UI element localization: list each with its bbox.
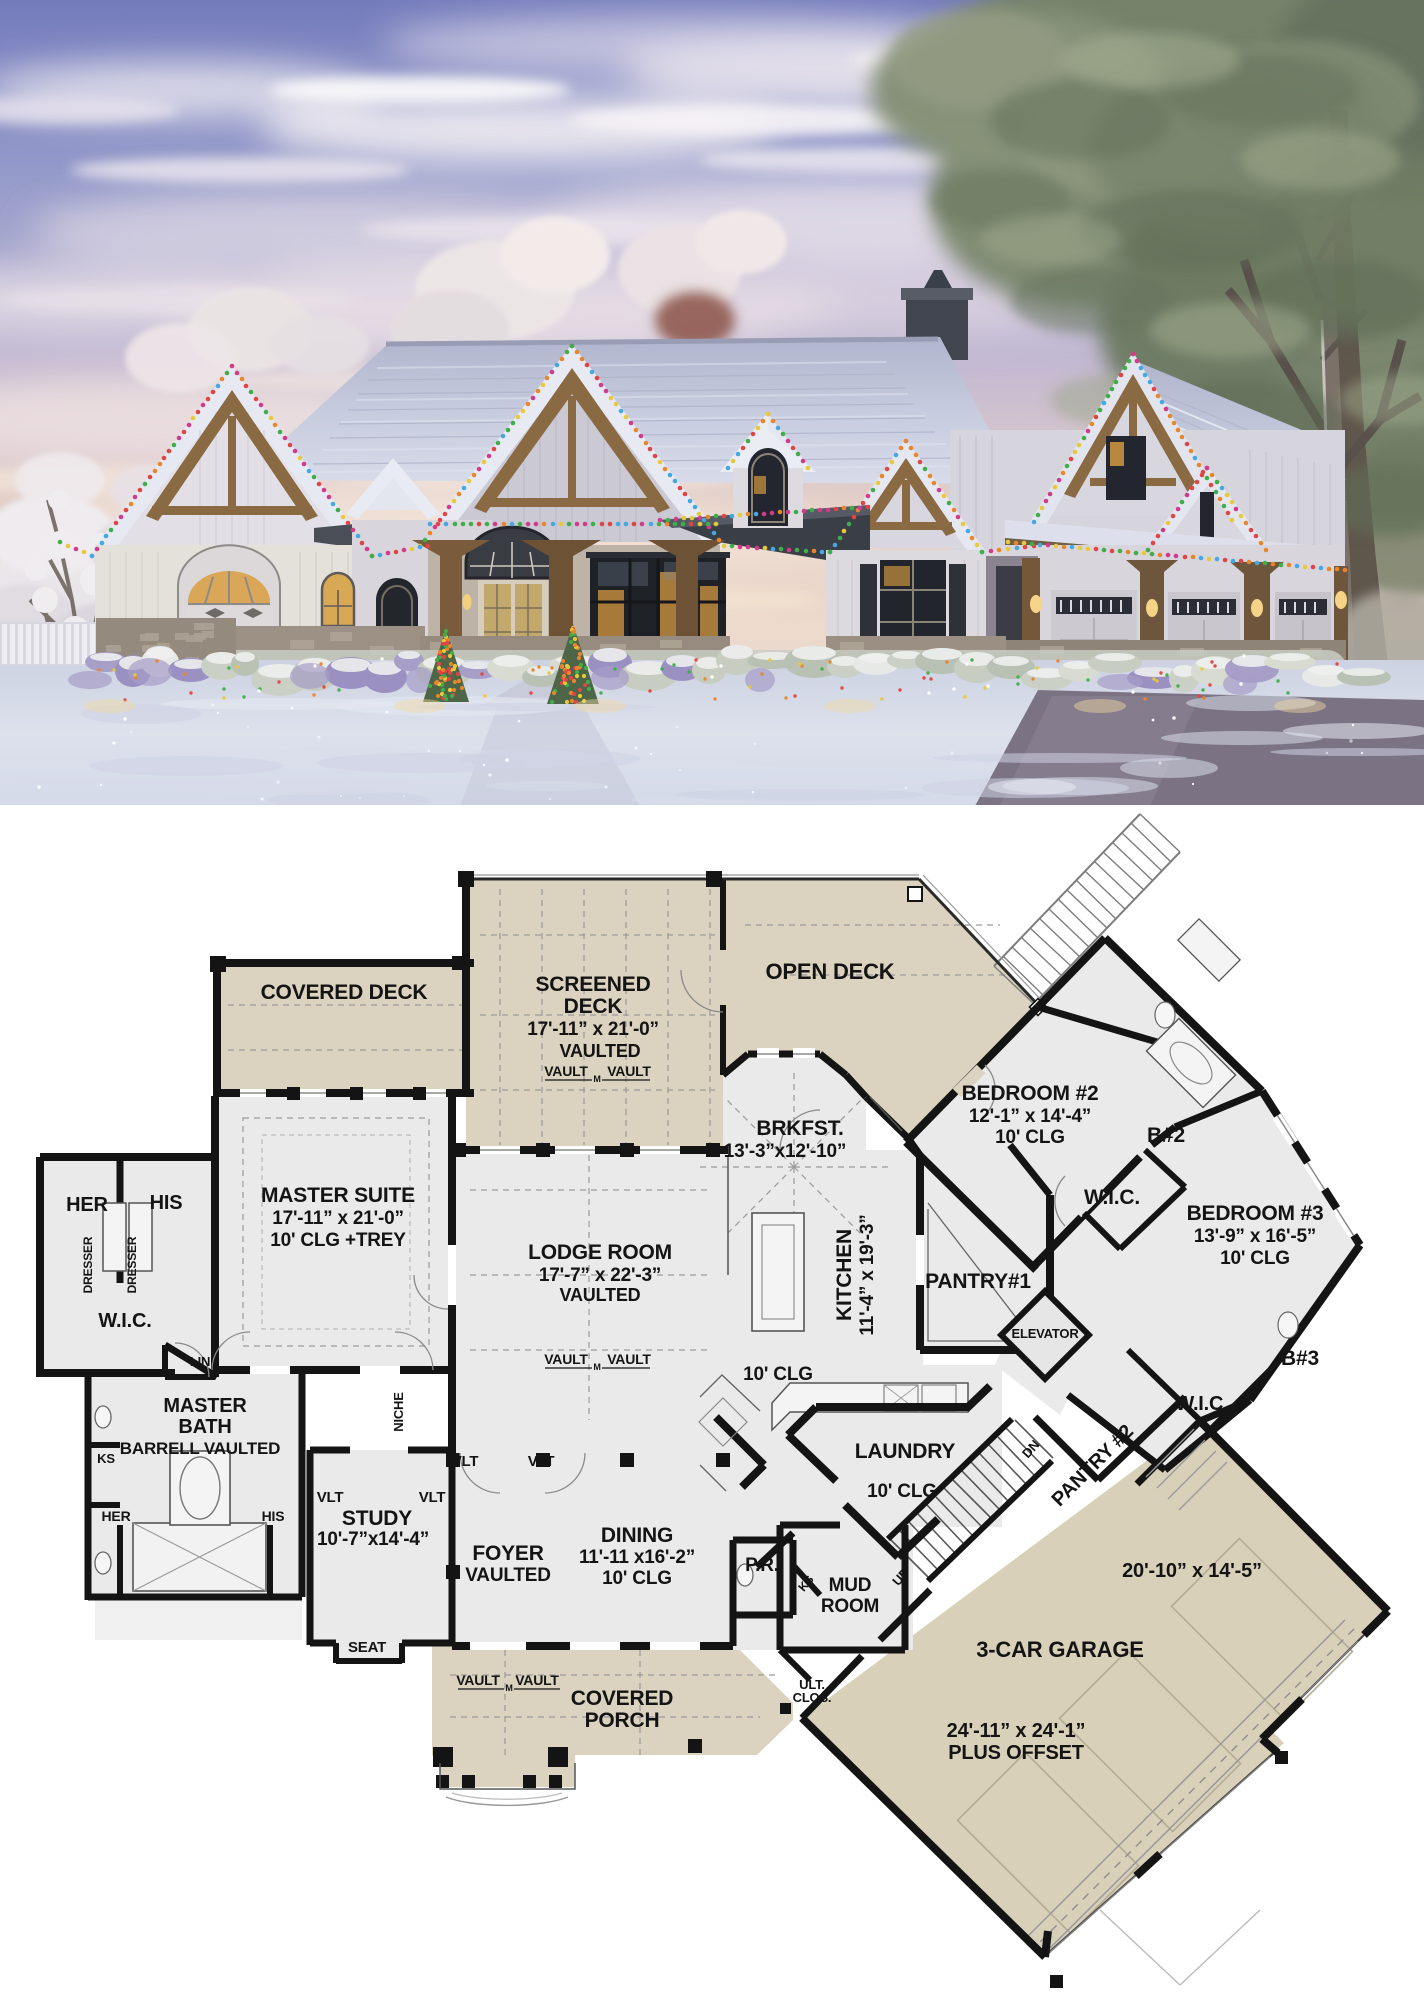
- svg-text:VAULT: VAULT: [515, 1672, 559, 1688]
- svg-text:BARRELL VAULTED: BARRELL VAULTED: [120, 1439, 280, 1458]
- svg-text:10' CLG: 10' CLG: [995, 1127, 1065, 1148]
- svg-text:CLOS.: CLOS.: [793, 1690, 832, 1705]
- svg-text:M: M: [593, 1362, 600, 1372]
- svg-text:NICHE: NICHE: [391, 1392, 406, 1432]
- svg-text:PLUS OFFSET: PLUS OFFSET: [948, 1742, 1084, 1764]
- svg-text:17'-7” x 22'-3”: 17'-7” x 22'-3”: [539, 1265, 661, 1286]
- svg-text:LODGE ROOM: LODGE ROOM: [528, 1241, 672, 1264]
- svg-text:MASTER SUITE: MASTER SUITE: [261, 1184, 415, 1207]
- svg-text:VAULTED: VAULTED: [465, 1565, 551, 1586]
- svg-text:B#3: B#3: [1281, 1347, 1319, 1370]
- svg-text:17'-11” x 21'-0”: 17'-11” x 21'-0”: [527, 1019, 659, 1040]
- svg-text:KITCHEN: KITCHEN: [833, 1229, 856, 1321]
- svg-text:W.I.C.: W.I.C.: [1084, 1186, 1140, 1209]
- svg-text:20'-10” x 14'-5”: 20'-10” x 14'-5”: [1122, 1560, 1262, 1582]
- svg-text:BATH: BATH: [178, 1416, 231, 1438]
- svg-text:M: M: [505, 1683, 512, 1693]
- svg-text:11'-11 x16'-2”: 11'-11 x16'-2”: [579, 1547, 695, 1568]
- svg-text:VAULT: VAULT: [544, 1351, 588, 1367]
- svg-text:COVERED DECK: COVERED DECK: [261, 981, 428, 1004]
- svg-text:ELEVATOR: ELEVATOR: [1011, 1326, 1079, 1341]
- svg-text:HER: HER: [102, 1508, 131, 1524]
- svg-text:10' CLG: 10' CLG: [743, 1364, 813, 1385]
- svg-text:VLT: VLT: [452, 1453, 479, 1470]
- svg-text:VAULT: VAULT: [607, 1063, 651, 1079]
- svg-text:W.I.C.: W.I.C.: [1175, 1393, 1228, 1415]
- svg-text:VAULT: VAULT: [607, 1351, 651, 1367]
- svg-text:OPEN DECK: OPEN DECK: [766, 959, 895, 984]
- svg-text:ROOM: ROOM: [821, 1596, 879, 1617]
- svg-text:M: M: [593, 1074, 600, 1084]
- svg-text:10' CLG +TREY: 10' CLG +TREY: [270, 1230, 406, 1251]
- svg-text:10'-7”x14'-4”: 10'-7”x14'-4”: [317, 1529, 429, 1550]
- svg-text:DRESSER: DRESSER: [81, 1236, 95, 1293]
- svg-text:VLT: VLT: [528, 1453, 555, 1470]
- svg-text:VAULTED: VAULTED: [560, 1041, 641, 1061]
- svg-text:DECK: DECK: [564, 995, 623, 1018]
- svg-text:10' CLG: 10' CLG: [867, 1481, 937, 1502]
- svg-text:FOYER: FOYER: [472, 1542, 543, 1565]
- svg-text:LIN: LIN: [190, 1354, 210, 1369]
- svg-text:13'-9” x 16'-5”: 13'-9” x 16'-5”: [1194, 1226, 1316, 1247]
- svg-text:BEDROOM #3: BEDROOM #3: [1187, 1202, 1324, 1225]
- svg-text:24'-11” x 24'-1”: 24'-11” x 24'-1”: [947, 1720, 1086, 1742]
- svg-text:MASTER: MASTER: [163, 1395, 247, 1417]
- svg-text:PORCH: PORCH: [585, 1709, 660, 1732]
- svg-text:3-CAR GARAGE: 3-CAR GARAGE: [976, 1637, 1144, 1662]
- svg-text:DRESSER: DRESSER: [125, 1236, 139, 1293]
- svg-text:COVERED: COVERED: [571, 1687, 673, 1710]
- svg-text:17'-11” x 21'-0”: 17'-11” x 21'-0”: [272, 1208, 404, 1229]
- svg-text:HIS: HIS: [150, 1192, 183, 1214]
- svg-text:12'-1” x 14'-4”: 12'-1” x 14'-4”: [969, 1106, 1091, 1127]
- svg-text:11'-4” x 19'-3”: 11'-4” x 19'-3”: [857, 1214, 878, 1335]
- svg-text:LAUNDRY: LAUNDRY: [855, 1440, 956, 1463]
- svg-text:10' CLG: 10' CLG: [602, 1568, 672, 1589]
- svg-text:HIS: HIS: [262, 1508, 285, 1524]
- svg-text:PANTRY#1: PANTRY#1: [925, 1270, 1031, 1293]
- svg-text:P.R.: P.R.: [745, 1555, 779, 1576]
- svg-text:SCREENED: SCREENED: [535, 973, 650, 996]
- svg-text:VAULT: VAULT: [544, 1063, 588, 1079]
- svg-text:13'-3”x12'-10”: 13'-3”x12'-10”: [724, 1141, 846, 1162]
- svg-text:MUD: MUD: [829, 1575, 872, 1596]
- svg-text:VLT: VLT: [419, 1489, 446, 1506]
- svg-text:STUDY: STUDY: [342, 1507, 412, 1530]
- svg-text:BRKFST.: BRKFST.: [756, 1117, 843, 1140]
- svg-text:DINING: DINING: [601, 1524, 673, 1547]
- svg-text:SEAT: SEAT: [348, 1639, 386, 1656]
- svg-text:B#2: B#2: [1147, 1124, 1185, 1147]
- svg-text:W.I.C.: W.I.C.: [98, 1310, 151, 1332]
- svg-text:VAULTED: VAULTED: [560, 1285, 641, 1305]
- svg-text:VAULT: VAULT: [456, 1672, 500, 1688]
- svg-text:10' CLG: 10' CLG: [1220, 1248, 1290, 1269]
- svg-text:BEDROOM #2: BEDROOM #2: [962, 1082, 1099, 1105]
- svg-text:HER: HER: [66, 1194, 108, 1216]
- svg-text:KS: KS: [97, 1451, 115, 1466]
- svg-text:VLT: VLT: [317, 1489, 344, 1506]
